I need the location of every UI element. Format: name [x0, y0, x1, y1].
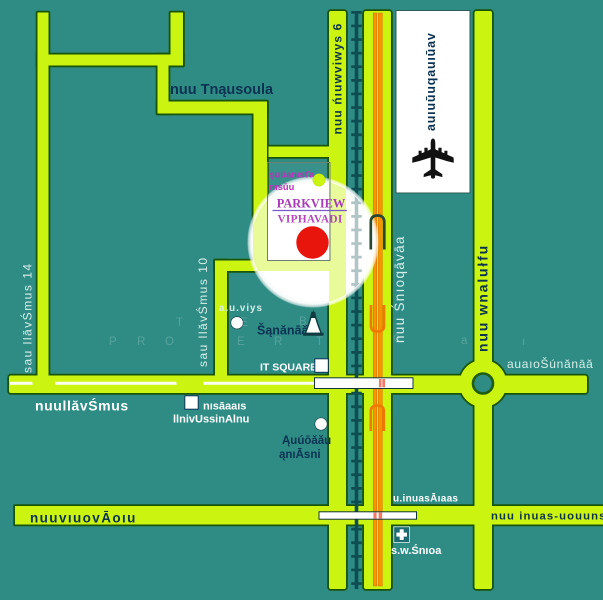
svg-text:s.w.Śnıoa: s.w.Śnıoa [391, 544, 442, 557]
svg-text:auıuūuqauıūav: auıuūuqauıūav [424, 32, 438, 131]
svg-text:llnivUssinAlnu: llnivUssinAlnu [173, 414, 249, 426]
svg-text:E: E [240, 317, 248, 329]
svg-text:sau llăvŚmus 14: sau llăvŚmus 14 [20, 262, 35, 373]
svg-text:nuu wnalułfu: nuu wnalułfu [475, 244, 491, 352]
svg-text:VIPHAVADI: VIPHAVADI [277, 214, 342, 226]
svg-text:o: o [393, 332, 399, 344]
svg-text:T: T [316, 336, 323, 348]
svg-text:R: R [137, 336, 145, 348]
svg-text:T: T [176, 317, 183, 329]
svg-text:nuu inuas-uouuns: nuu inuas-uouuns [491, 511, 603, 523]
svg-text:nısūu: nısūu [270, 182, 295, 192]
svg-text:nuu Tnąusoula: nuu Tnąusoula [170, 82, 274, 98]
svg-text:nuuvıuovĀoıu: nuuvıuovĀoıu [30, 511, 137, 526]
svg-text:R: R [274, 336, 282, 348]
svg-text:auaıoŠúnănāă: auaıoŠúnănāă [507, 356, 593, 371]
svg-text:IT SQUARE: IT SQUARE [260, 362, 317, 374]
svg-text:P: P [109, 336, 117, 348]
svg-text:E: E [237, 336, 245, 348]
svg-text:B: B [299, 316, 307, 328]
svg-text:nuu Śnıoqāvāa: nuu Śnıoqāvāa [392, 235, 407, 343]
svg-text:ąnıĀsni: ąnıĀsni [279, 449, 321, 461]
svg-text:şuúanısťa: şuúanısťa [270, 170, 316, 180]
svg-text:sau llăvŚmus 10: sau llăvŚmus 10 [195, 256, 210, 367]
svg-text:a: a [461, 335, 468, 347]
svg-text:PARKVIEW: PARKVIEW [277, 197, 346, 211]
svg-text:nuu ńıuwviwys 6: nuu ńıuwviwys 6 [331, 23, 345, 135]
svg-text:nuullăvŚmus: nuullăvŚmus [35, 397, 129, 414]
svg-text:a.u.viys: a.u.viys [219, 303, 263, 314]
svg-text:O: O [165, 336, 174, 348]
svg-text:nısāaaıs: nısāaaıs [203, 401, 246, 413]
svg-text:ı: ı [522, 336, 525, 348]
svg-text:Ąuúōăău: Ąuúōăău [282, 435, 331, 447]
svg-text:u.inuasĀıaas: u.inuasĀıaas [393, 493, 458, 505]
